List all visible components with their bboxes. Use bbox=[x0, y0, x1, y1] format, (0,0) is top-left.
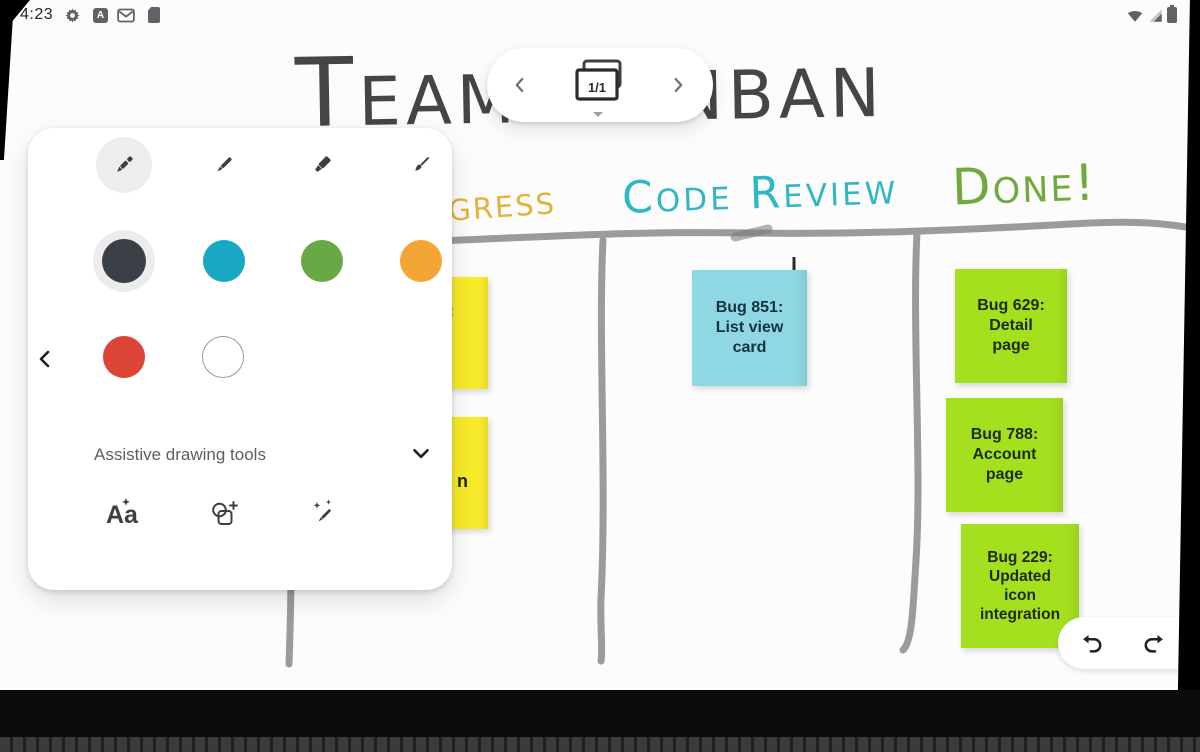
note-line: List view bbox=[716, 318, 784, 338]
note-line: Bug 788: bbox=[971, 425, 1039, 445]
color-swatch-green[interactable] bbox=[301, 240, 343, 282]
note-line: page bbox=[992, 336, 1029, 356]
android-nav-bar bbox=[0, 690, 1200, 737]
note-line: card bbox=[733, 338, 767, 358]
app-a-icon: A bbox=[93, 8, 108, 23]
chevron-down-icon[interactable] bbox=[408, 440, 434, 466]
color-swatch-red[interactable] bbox=[103, 336, 145, 378]
cell-signal-icon bbox=[1148, 8, 1163, 23]
redo-icon[interactable] bbox=[1141, 630, 1167, 656]
clock: 4:23 bbox=[20, 6, 53, 24]
next-page-icon[interactable] bbox=[667, 74, 689, 96]
color-swatch-orange[interactable] bbox=[400, 240, 442, 282]
color-swatch-white[interactable] bbox=[202, 336, 244, 378]
column-label-code-review: Code Review bbox=[621, 163, 899, 224]
marker-icon[interactable] bbox=[309, 152, 335, 178]
settings-gear-icon bbox=[64, 7, 81, 24]
battery-icon bbox=[1167, 7, 1177, 23]
note-line: Detail bbox=[989, 316, 1033, 336]
note-line: Bug 629: bbox=[977, 296, 1045, 316]
assistive-drawing-tools-label: Assistive drawing tools bbox=[94, 445, 266, 465]
tablet-screenshot: Team Kanban gress Code Review Done! : n … bbox=[0, 0, 1200, 752]
page-navigation-pill: 1/1 bbox=[487, 48, 713, 122]
column-divider-2 bbox=[601, 240, 603, 661]
undo-icon[interactable] bbox=[1079, 630, 1105, 656]
wifi-icon bbox=[1126, 8, 1144, 23]
note-line: integration bbox=[980, 605, 1060, 624]
note-text-fragment: n bbox=[457, 471, 468, 492]
sd-card-icon bbox=[148, 7, 160, 23]
sticky-note-bug-629[interactable]: Bug 629: Detail page bbox=[955, 269, 1067, 383]
column-label-in-progress: gress bbox=[446, 174, 557, 230]
column-label-done: Done! bbox=[951, 153, 1097, 216]
column-divider-3 bbox=[903, 233, 918, 650]
note-line: Bug 229: bbox=[987, 548, 1052, 567]
assistive-autodraw-icon[interactable] bbox=[308, 498, 338, 528]
brush-icon[interactable] bbox=[408, 152, 434, 178]
note-line: Updated bbox=[989, 567, 1051, 586]
note-line: page bbox=[986, 465, 1023, 485]
pen-icon[interactable] bbox=[211, 152, 237, 178]
gmail-icon bbox=[117, 8, 135, 23]
drawing-tool-panel: Assistive drawing tools Aa bbox=[28, 128, 452, 590]
android-status-bar: 4:23 A bbox=[0, 0, 1200, 30]
color-swatch-teal[interactable] bbox=[203, 240, 245, 282]
page-count: 1/1 bbox=[577, 80, 617, 95]
note-line: icon bbox=[1004, 586, 1036, 605]
ballpoint-pen-icon[interactable] bbox=[111, 152, 137, 178]
device-bezel bbox=[0, 737, 1200, 752]
note-line: Account bbox=[973, 445, 1037, 465]
color-swatch-black[interactable] bbox=[102, 239, 146, 283]
aa-glyph: Aa bbox=[106, 501, 139, 529]
assistive-shape-icon[interactable] bbox=[209, 499, 239, 529]
board-header-line bbox=[437, 222, 1196, 241]
assistive-text-icon[interactable]: Aa bbox=[104, 496, 144, 530]
sticky-note-bug-788[interactable]: Bug 788: Account page bbox=[946, 398, 1063, 512]
previous-page-icon[interactable] bbox=[509, 74, 531, 96]
note-line: Bug 851: bbox=[716, 298, 784, 318]
collapse-panel-chevron-icon[interactable] bbox=[33, 347, 57, 371]
caret-down-icon bbox=[593, 112, 603, 117]
sticky-note-bug-851[interactable]: Bug 851: List view card bbox=[692, 270, 807, 386]
